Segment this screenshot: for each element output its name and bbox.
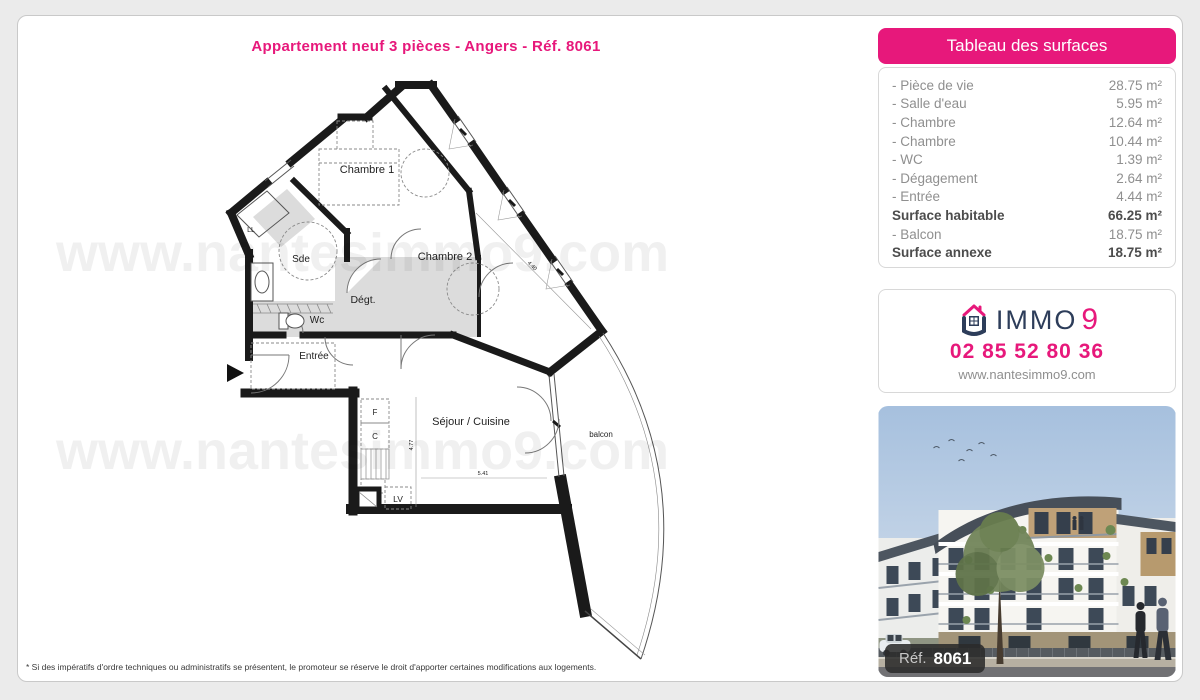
sink-niche [357, 489, 379, 509]
table-row: - Pièce de vie28.75 m² [892, 76, 1162, 95]
row-value: 10.44 m² [1109, 134, 1162, 149]
row-value: 4.44 m² [1116, 189, 1162, 204]
reference-badge: Réf. 8061 [885, 644, 985, 673]
row-value: 1.39 m² [1116, 152, 1162, 167]
table-row: - Entrée4.44 m² [892, 188, 1162, 207]
row-label: - Entrée [892, 189, 940, 204]
table-row-total: Surface habitable66.25 m² [892, 206, 1162, 225]
dim-width: 5.41 [478, 471, 489, 477]
label-c: C [372, 432, 378, 441]
listing-card: Appartement neuf 3 pièces - Angers - Réf… [17, 15, 1183, 682]
label-chambre2: Chambre 2 [418, 251, 472, 263]
row-value: 2.64 m² [1116, 171, 1162, 186]
table-row: - Chambre12.64 m² [892, 113, 1162, 132]
floor-plan: Chambre 1 Chambre 2 Sde Dégt. Wc LL Entr… [213, 77, 683, 671]
surfaces-table: - Pièce de vie28.75 m² - Salle d'eau5.95… [878, 67, 1176, 268]
label-sde: Sde [292, 254, 310, 265]
row-label: - Pièce de vie [892, 78, 974, 93]
brand-nine: 9 [1081, 303, 1098, 337]
row-label: - Salle d'eau [892, 96, 967, 111]
label-balcon: balcon [589, 430, 613, 439]
label-degt: Dégt. [350, 294, 375, 306]
label-f: F [373, 408, 378, 417]
kitchen-counter [361, 449, 389, 479]
row-value: 66.25 m² [1108, 208, 1162, 223]
building-photo-illustration [878, 406, 1176, 677]
agency-logo: IMMO9 [879, 302, 1175, 338]
table-row: - Salle d'eau5.95 m² [892, 95, 1162, 114]
ref-label: Réf. [899, 650, 927, 667]
label-entree: Entrée [299, 351, 329, 362]
row-value: 5.95 m² [1116, 96, 1162, 111]
label-chambre1: Chambre 1 [340, 164, 394, 176]
table-row: - Balcon18.75 m² [892, 225, 1162, 244]
footnote: * Si des impératifs d'ordre techniques o… [26, 662, 596, 672]
page-title: Appartement neuf 3 pièces - Angers - Réf… [18, 38, 834, 55]
brand-immo: IMMO [996, 305, 1078, 336]
label-wc: Wc [310, 315, 324, 326]
row-value: 18.75 m² [1109, 227, 1162, 242]
entrance-arrow-icon [227, 364, 244, 382]
label-lv: LV [393, 494, 403, 504]
balcony [585, 333, 664, 659]
row-label: Surface annexe [892, 245, 992, 260]
row-label: - Balcon [892, 227, 942, 242]
row-value: 28.75 m² [1109, 78, 1162, 93]
agency-box: IMMO9 02 85 52 80 36 www.nantesimmo9.com [878, 289, 1176, 393]
ref-number: 8061 [934, 649, 972, 669]
row-label: - Chambre [892, 115, 956, 130]
website-link[interactable]: www.nantesimmo9.com [879, 367, 1175, 382]
table-row-total: Surface annexe18.75 m² [892, 243, 1162, 262]
table-row: - WC1.39 m² [892, 150, 1162, 169]
table-row: - Chambre10.44 m² [892, 132, 1162, 151]
table-row: - Dégagement2.64 m² [892, 169, 1162, 188]
building-photo: Réf. 8061 [878, 406, 1176, 677]
row-label: Surface habitable [892, 208, 1005, 223]
row-label: - Dégagement [892, 171, 978, 186]
immo9-house-icon [956, 303, 992, 337]
row-value: 18.75 m² [1108, 245, 1162, 260]
label-sejour: Séjour / Cuisine [432, 416, 510, 428]
label-ll: LL [247, 227, 255, 234]
phone-number[interactable]: 02 85 52 80 36 [879, 340, 1175, 364]
dim-diag: 4.40 [526, 260, 538, 272]
row-value: 12.64 m² [1109, 115, 1162, 130]
dim-height: 4.77 [409, 440, 415, 451]
surfaces-header: Tableau des surfaces [878, 28, 1176, 64]
row-label: - Chambre [892, 134, 956, 149]
row-label: - WC [892, 152, 923, 167]
